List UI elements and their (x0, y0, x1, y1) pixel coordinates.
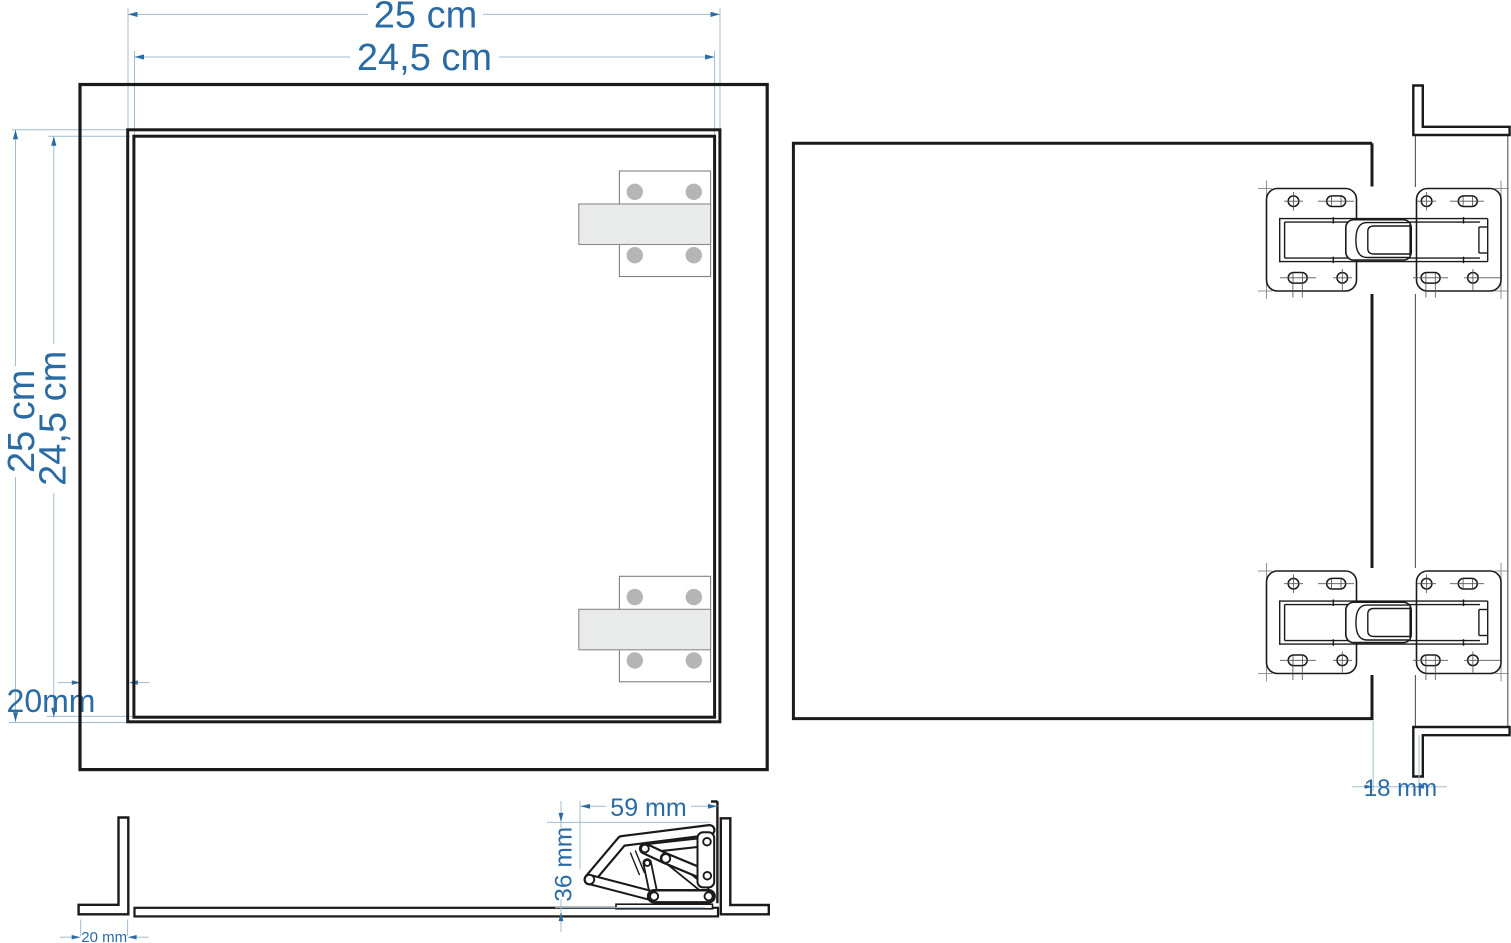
svg-text:36 mm: 36 mm (551, 827, 578, 902)
svg-text:20mm: 20mm (7, 683, 96, 719)
svg-text:20 mm: 20 mm (81, 929, 127, 943)
svg-text:59 mm: 59 mm (610, 794, 686, 822)
svg-text:18 mm: 18 mm (1364, 775, 1437, 802)
svg-text:24,5 cm: 24,5 cm (33, 351, 75, 486)
svg-text:25 cm: 25 cm (374, 0, 477, 37)
svg-text:24,5 cm: 24,5 cm (357, 37, 492, 79)
